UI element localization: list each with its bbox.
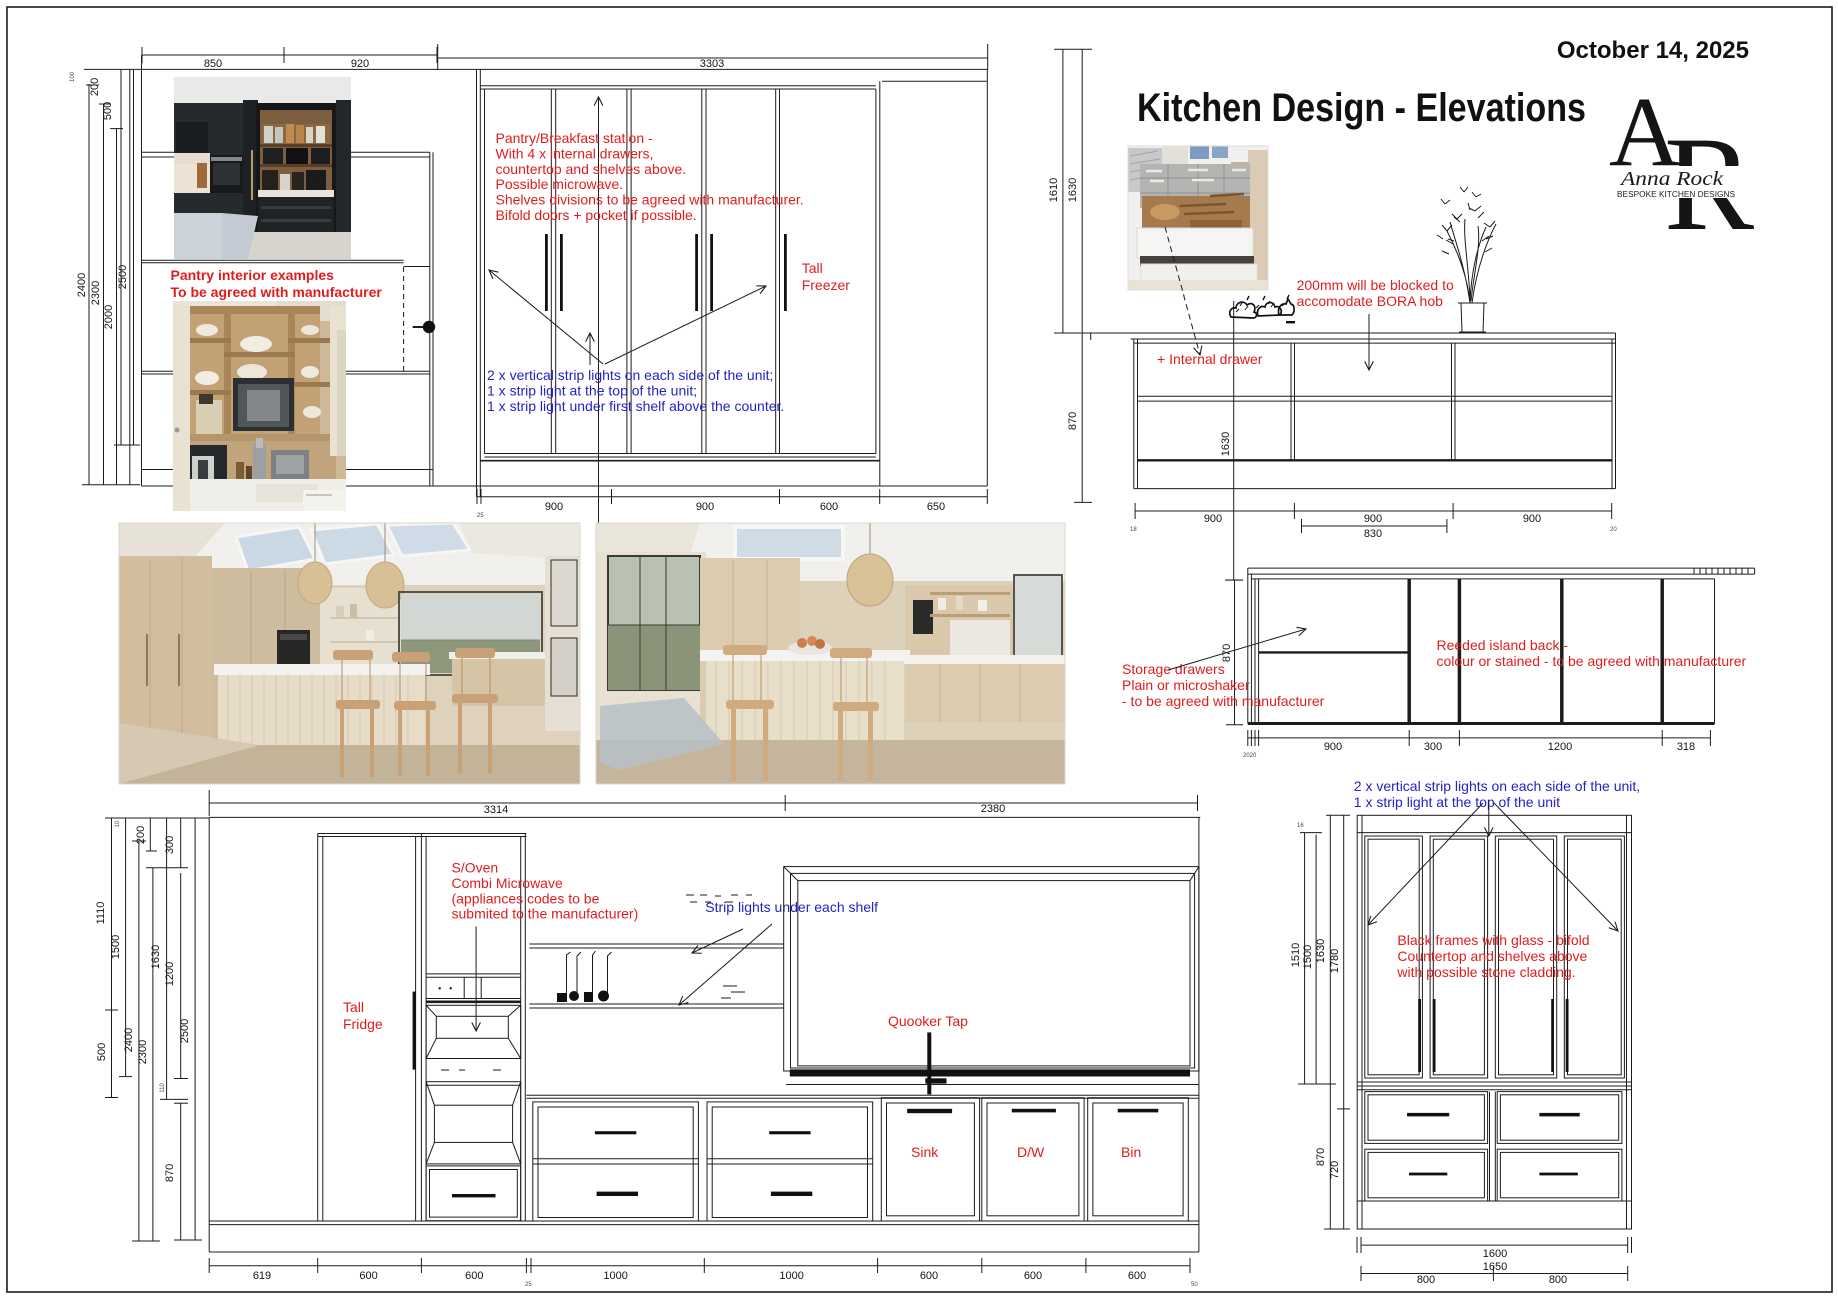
svg-text:300: 300	[164, 836, 176, 854]
svg-text:720: 720	[1329, 1161, 1341, 1179]
svg-text:Black frames with glass - bifo: Black frames with glass - bifold	[1397, 932, 1589, 948]
svg-text:870: 870	[1315, 1148, 1327, 1166]
svg-text:3303: 3303	[700, 58, 724, 70]
svg-text:200: 200	[135, 826, 147, 844]
svg-text:Possible microwave.: Possible microwave.	[496, 176, 624, 192]
svg-text:2500: 2500	[179, 1019, 191, 1043]
svg-text:200mm will be blocked to: 200mm will be blocked to	[1297, 277, 1454, 293]
svg-text:600: 600	[920, 1270, 938, 1282]
svg-text:Pantry/Breakfast station -: Pantry/Breakfast station -	[496, 130, 654, 146]
svg-text:900: 900	[545, 501, 563, 513]
svg-text:colour or stained - to be agre: colour or stained - to be agreed with ma…	[1437, 653, 1747, 669]
svg-text:accomodate BORA hob: accomodate BORA hob	[1297, 293, 1444, 309]
svg-text:1650: 1650	[1483, 1261, 1507, 1273]
svg-text:900: 900	[1523, 513, 1541, 525]
svg-text:800: 800	[1417, 1274, 1435, 1286]
svg-text:2500: 2500	[117, 265, 129, 289]
svg-text:2020: 2020	[1243, 753, 1257, 759]
svg-text:Pantry interior examples: Pantry interior examples	[171, 267, 335, 283]
svg-text:Fridge: Fridge	[343, 1016, 383, 1032]
svg-text:Combi Microwave: Combi Microwave	[452, 875, 563, 891]
svg-text:1780: 1780	[1329, 949, 1341, 973]
svg-text:2400: 2400	[123, 1028, 135, 1052]
svg-text:+ Internal drawer: + Internal drawer	[1157, 351, 1263, 367]
svg-text:Bin: Bin	[1121, 1144, 1141, 1160]
svg-text:870: 870	[164, 1164, 176, 1182]
svg-text:S/Oven: S/Oven	[452, 860, 499, 876]
svg-text:2000: 2000	[103, 305, 115, 329]
svg-text:with possible stone cladding.: with possible stone cladding.	[1396, 964, 1575, 980]
svg-text:1000: 1000	[603, 1270, 627, 1282]
svg-text:Anna Rock: Anna Rock	[1619, 168, 1725, 190]
svg-text:1600: 1600	[1483, 1248, 1507, 1260]
svg-text:submited to the manufacturer): submited to the manufacturer)	[452, 906, 639, 922]
svg-text:870: 870	[1221, 644, 1233, 662]
svg-text:1110: 1110	[95, 902, 107, 925]
svg-text:1000: 1000	[779, 1270, 803, 1282]
svg-text:1 x strip light under first sh: 1 x strip light under first shelf above …	[487, 398, 784, 414]
svg-text:Strip lights under each shelf: Strip lights under each shelf	[705, 899, 878, 915]
svg-text:16: 16	[1297, 823, 1304, 829]
svg-text:650: 650	[927, 501, 945, 513]
svg-text:110: 110	[160, 1083, 166, 1093]
svg-text:50: 50	[1191, 1282, 1198, 1288]
svg-text:900: 900	[1364, 513, 1382, 525]
svg-text:2300: 2300	[137, 1040, 149, 1064]
svg-text:20: 20	[1610, 527, 1617, 533]
svg-text:1 x strip light at the top of: 1 x strip light at the top of the unit;	[487, 382, 697, 398]
svg-text:(appliances codes to be: (appliances codes to be	[452, 890, 600, 906]
svg-text:2 x vertical strip lights on e: 2 x vertical strip lights on each side o…	[1354, 778, 1640, 794]
svg-text:Freezer: Freezer	[802, 277, 851, 293]
svg-text:1200: 1200	[1548, 741, 1572, 753]
svg-text:1510: 1510	[1290, 943, 1302, 967]
svg-text:800: 800	[1549, 1274, 1567, 1286]
svg-text:2380: 2380	[981, 803, 1005, 815]
svg-text:300: 300	[1424, 741, 1442, 753]
svg-text:1630: 1630	[1220, 432, 1232, 456]
svg-text:Plain or microshaker: Plain or microshaker	[1122, 677, 1250, 693]
svg-text:1500: 1500	[1302, 945, 1314, 969]
svg-text:900: 900	[696, 501, 714, 513]
svg-text:10: 10	[115, 820, 121, 827]
svg-text:600: 600	[1128, 1270, 1146, 1282]
svg-text:Quooker Tap: Quooker Tap	[888, 1013, 968, 1029]
svg-text:500: 500	[96, 1043, 108, 1061]
svg-text:2 x vertical strip lights on e: 2 x vertical strip lights on each side o…	[487, 367, 773, 383]
svg-text:600: 600	[359, 1270, 377, 1282]
svg-text:Bifold doors + pocket if possi: Bifold doors + pocket if possible.	[496, 207, 697, 223]
svg-text:Sink: Sink	[911, 1144, 939, 1160]
svg-text:To be agreed with manufacturer: To be agreed with manufacturer	[171, 284, 383, 300]
svg-text:Countertop and shelves above: Countertop and shelves above	[1397, 948, 1587, 964]
svg-text:October 14, 2025: October 14, 2025	[1557, 37, 1749, 64]
svg-text:920: 920	[351, 58, 369, 70]
svg-text:619: 619	[253, 1270, 271, 1282]
svg-text:1500: 1500	[110, 935, 122, 959]
svg-text:870: 870	[1067, 412, 1079, 430]
svg-text:100: 100	[70, 71, 76, 82]
svg-text:318: 318	[1677, 741, 1695, 753]
svg-text:200: 200	[89, 78, 101, 96]
svg-text:1630: 1630	[1315, 939, 1327, 963]
svg-text:25: 25	[525, 1282, 532, 1288]
svg-text:Shelves divisions to be agreed: Shelves divisions to be agreed with manu…	[496, 192, 804, 208]
svg-text:25: 25	[477, 513, 484, 519]
svg-text:600: 600	[820, 501, 838, 513]
svg-text:countertop and shelves above.: countertop and shelves above.	[496, 161, 687, 177]
svg-text:- to be agreed with manufactur: - to be agreed with manufacturer	[1122, 693, 1325, 709]
svg-text:Tall: Tall	[343, 999, 364, 1015]
svg-text:1630: 1630	[150, 945, 162, 969]
svg-text:600: 600	[1024, 1270, 1042, 1282]
svg-text:1200: 1200	[164, 962, 176, 986]
svg-text:Storage drawers: Storage drawers	[1122, 661, 1225, 677]
svg-text:Reeded island back -: Reeded island back -	[1437, 637, 1569, 653]
svg-text:Tall: Tall	[802, 260, 823, 276]
svg-text:850: 850	[204, 58, 222, 70]
svg-text:1610: 1610	[1048, 178, 1060, 202]
svg-text:18: 18	[1130, 527, 1137, 533]
svg-text:2400: 2400	[76, 273, 88, 297]
svg-text:BESPOKE KITCHEN DESIGNS: BESPOKE KITCHEN DESIGNS	[1617, 190, 1735, 199]
svg-text:1 x strip light at the top of: 1 x strip light at the top of the unit	[1354, 794, 1560, 810]
svg-text:3314: 3314	[484, 804, 508, 816]
svg-text:2300: 2300	[90, 281, 102, 305]
svg-text:D/W: D/W	[1017, 1144, 1045, 1160]
svg-text:600: 600	[465, 1270, 483, 1282]
svg-text:500: 500	[102, 102, 114, 120]
svg-text:Kitchen Design - Elevations: Kitchen Design - Elevations	[1137, 86, 1586, 130]
svg-text:1630: 1630	[1067, 178, 1079, 202]
svg-text:With 4 x internal drawers,: With 4 x internal drawers,	[496, 145, 654, 161]
svg-text:900: 900	[1324, 741, 1342, 753]
svg-text:900: 900	[1204, 513, 1222, 525]
svg-text:830: 830	[1364, 528, 1382, 540]
